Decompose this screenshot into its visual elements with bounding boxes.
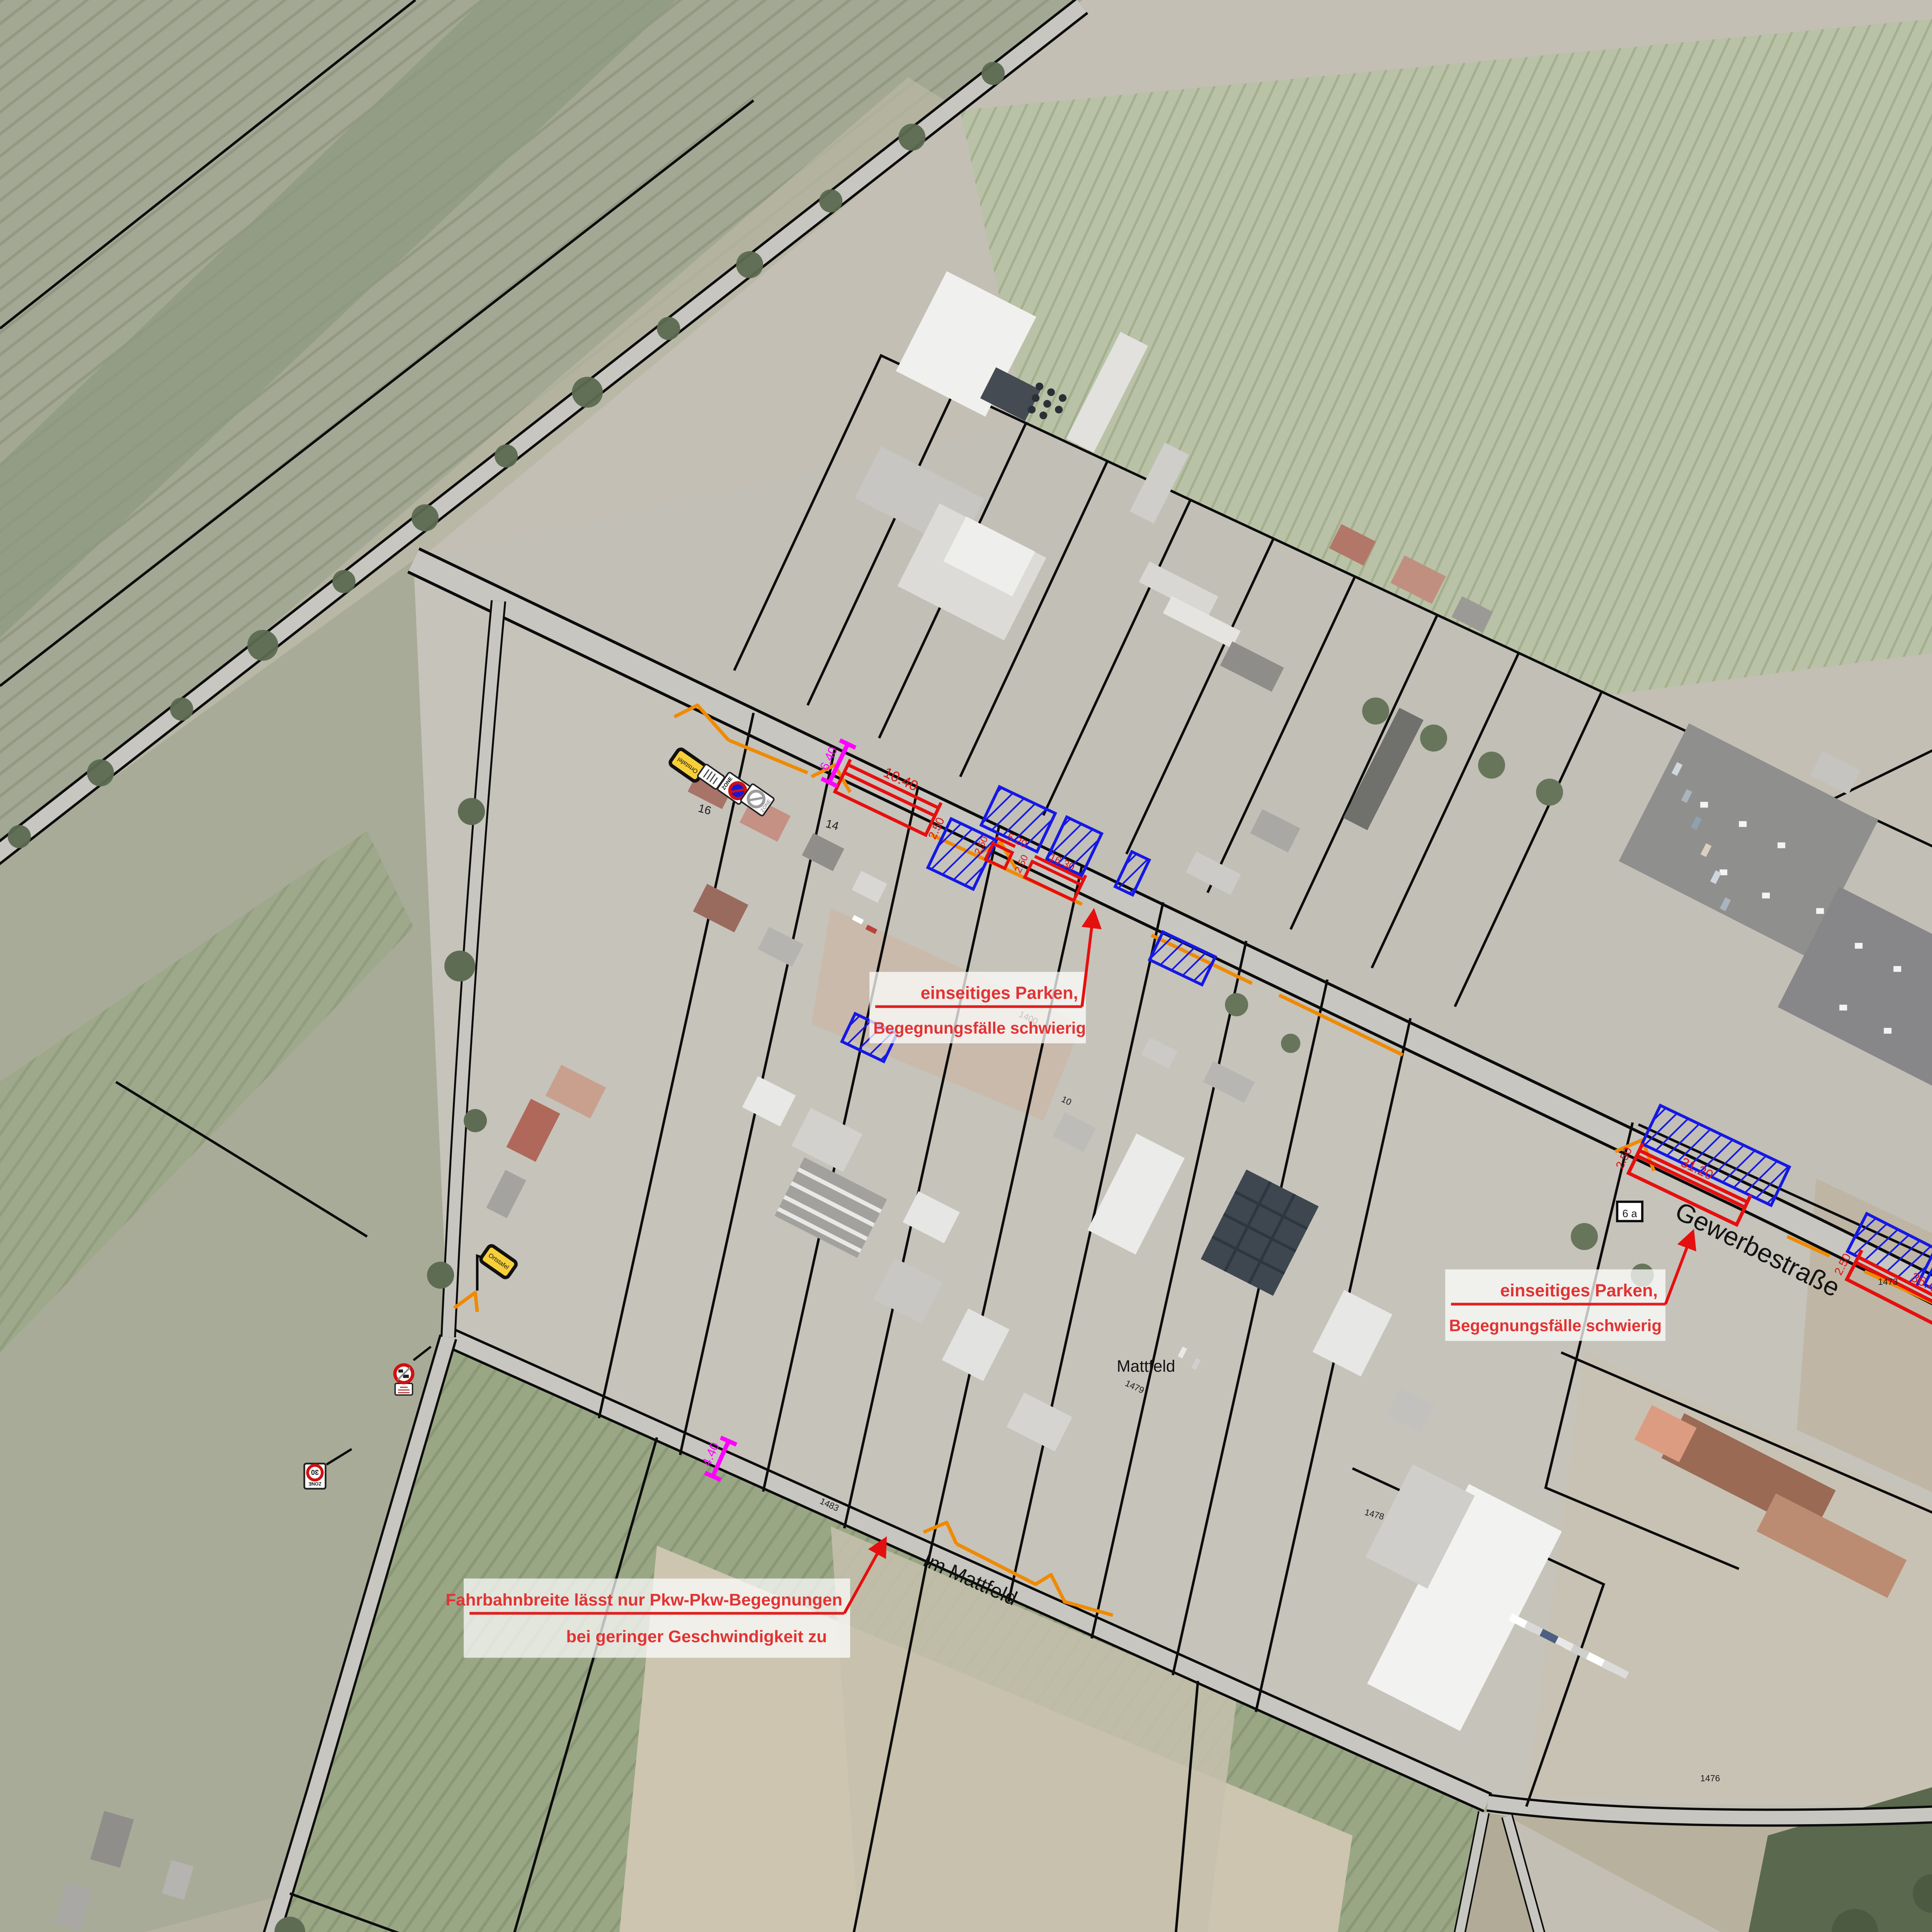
- parcel-1476: 1476: [1700, 1773, 1720, 1783]
- svg-text:6 a: 6 a: [1622, 1207, 1638, 1219]
- svg-text:ZONE: ZONE: [308, 1481, 321, 1486]
- sign-zone30: ZONE 30: [304, 1464, 326, 1489]
- svg-text:einseitiges Parken,: einseitiges Parken,: [920, 983, 1078, 1003]
- svg-text:Fahrbahnbreite lässt nur Pkw-P: Fahrbahnbreite lässt nur Pkw-Pkw-Begegnu…: [446, 1590, 842, 1609]
- svg-text:30: 30: [311, 1468, 319, 1476]
- svg-text:Begegnungsfälle schwierig: Begegnungsfälle schwierig: [873, 1019, 1086, 1037]
- house-number-6a: 6 a: [1617, 1202, 1642, 1221]
- svg-text:bei geringer Geschwindigkeit z: bei geringer Geschwindigkeit zu: [566, 1627, 827, 1646]
- svg-text:Begegnungsfälle schwierig: Begegnungsfälle schwierig: [1449, 1317, 1662, 1335]
- sign-prohibition-kfz: [395, 1365, 413, 1395]
- aerial-map[interactable]: 10.40 2.50 5.20 2.50 16.30 2.50 31.20 2.…: [0, 0, 1932, 1932]
- field-label-mattfeld: Mattfeld: [1117, 1357, 1175, 1376]
- parcel-1473: 1473: [1878, 1277, 1898, 1287]
- svg-text:einseitiges Parken,: einseitiges Parken,: [1500, 1281, 1658, 1300]
- map-viewport[interactable]: 10.40 2.50 5.20 2.50 16.30 2.50 31.20 2.…: [0, 0, 1932, 1932]
